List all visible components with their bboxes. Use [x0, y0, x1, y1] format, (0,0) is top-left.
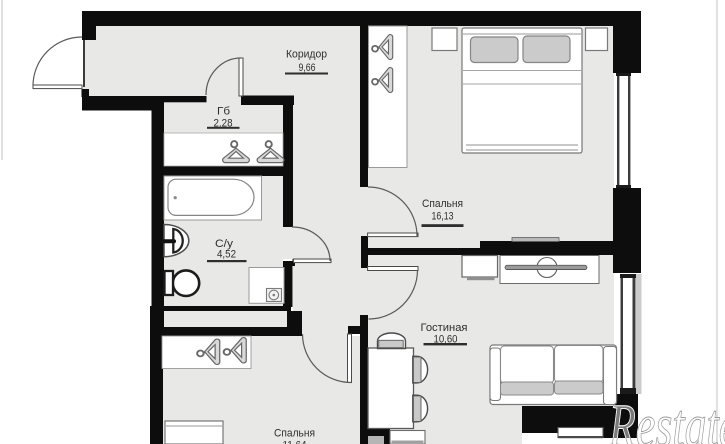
svg-text:Спальня: Спальня	[274, 428, 315, 440]
svg-text:Спальня: Спальня	[422, 198, 463, 210]
svg-text:Гб: Гб	[217, 106, 230, 118]
svg-text:16,13: 16,13	[432, 211, 454, 223]
svg-text:Гостиная: Гостиная	[421, 322, 468, 334]
svg-text:11,64: 11,64	[283, 440, 307, 444]
svg-text:9,66: 9,66	[299, 62, 316, 74]
svg-text:4,52: 4,52	[217, 249, 236, 261]
svg-text:Коридор: Коридор	[286, 49, 327, 61]
